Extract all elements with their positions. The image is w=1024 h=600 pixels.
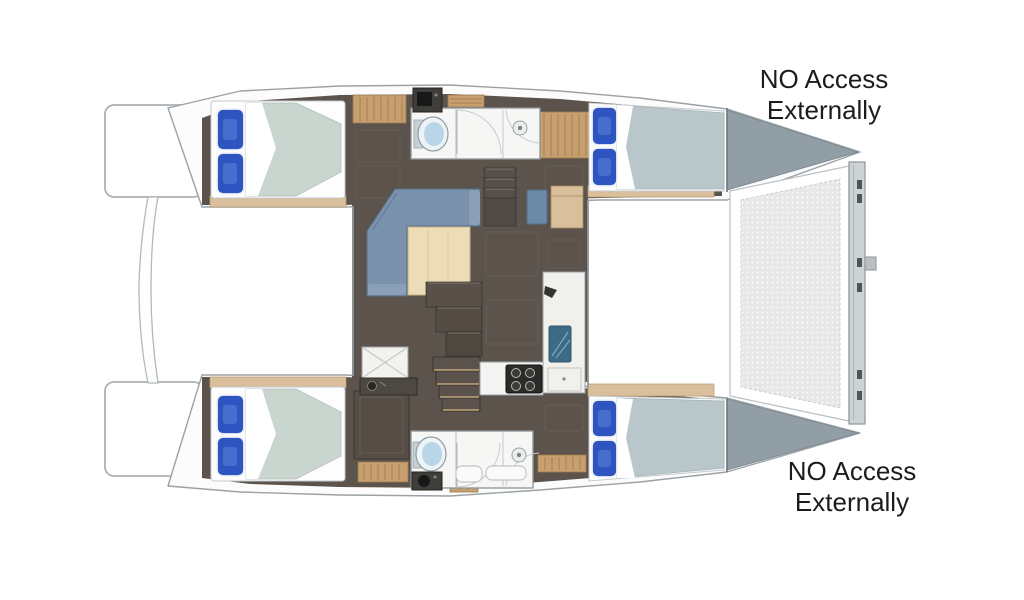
vanity-bottom: [412, 472, 442, 490]
bench-bottom-left: [358, 462, 408, 482]
no-access-line1: NO Access: [760, 64, 889, 94]
shower-drain-top: [513, 121, 527, 135]
bench-top-right: [537, 112, 590, 158]
mattress-fwd-top: [617, 105, 724, 189]
no-access-label-bottom: NO Access Externally: [757, 456, 947, 518]
bowsprit-fitting: [865, 257, 876, 270]
deck-strip-fwd-bottom: [588, 384, 714, 396]
bench-top-left: [353, 95, 406, 123]
floor-plan-page: NO Access Externally NO Access Externall…: [0, 0, 1024, 600]
galley-sink-unit: [543, 272, 585, 393]
no-access-line2: Externally: [757, 487, 947, 518]
chart-table: [551, 186, 583, 228]
transom-connector: [139, 197, 158, 383]
shower-drain-bottom: [512, 448, 526, 462]
shelf-top: [448, 95, 484, 107]
bathroom-fixtures-bottom: [456, 466, 526, 482]
side-counter: [360, 378, 417, 395]
bow-crossbeam: [849, 162, 876, 424]
toilet-top: [414, 117, 448, 151]
deck-strip-aft-bottom: [210, 377, 346, 388]
no-access-line2: Externally: [729, 95, 919, 126]
mattress-fwd-bottom: [617, 398, 724, 478]
nav-seat: [527, 190, 547, 224]
toilet-bottom: [413, 437, 446, 471]
no-access-label-top: NO Access Externally: [729, 64, 919, 126]
stairs-to-top-hull: [484, 168, 516, 226]
trampoline: [730, 166, 849, 421]
vanity-top: [413, 88, 442, 112]
no-access-line1: NO Access: [788, 456, 917, 486]
storage-box: [362, 347, 408, 378]
wardrobe: [354, 391, 409, 459]
galley-stove: [506, 365, 542, 393]
